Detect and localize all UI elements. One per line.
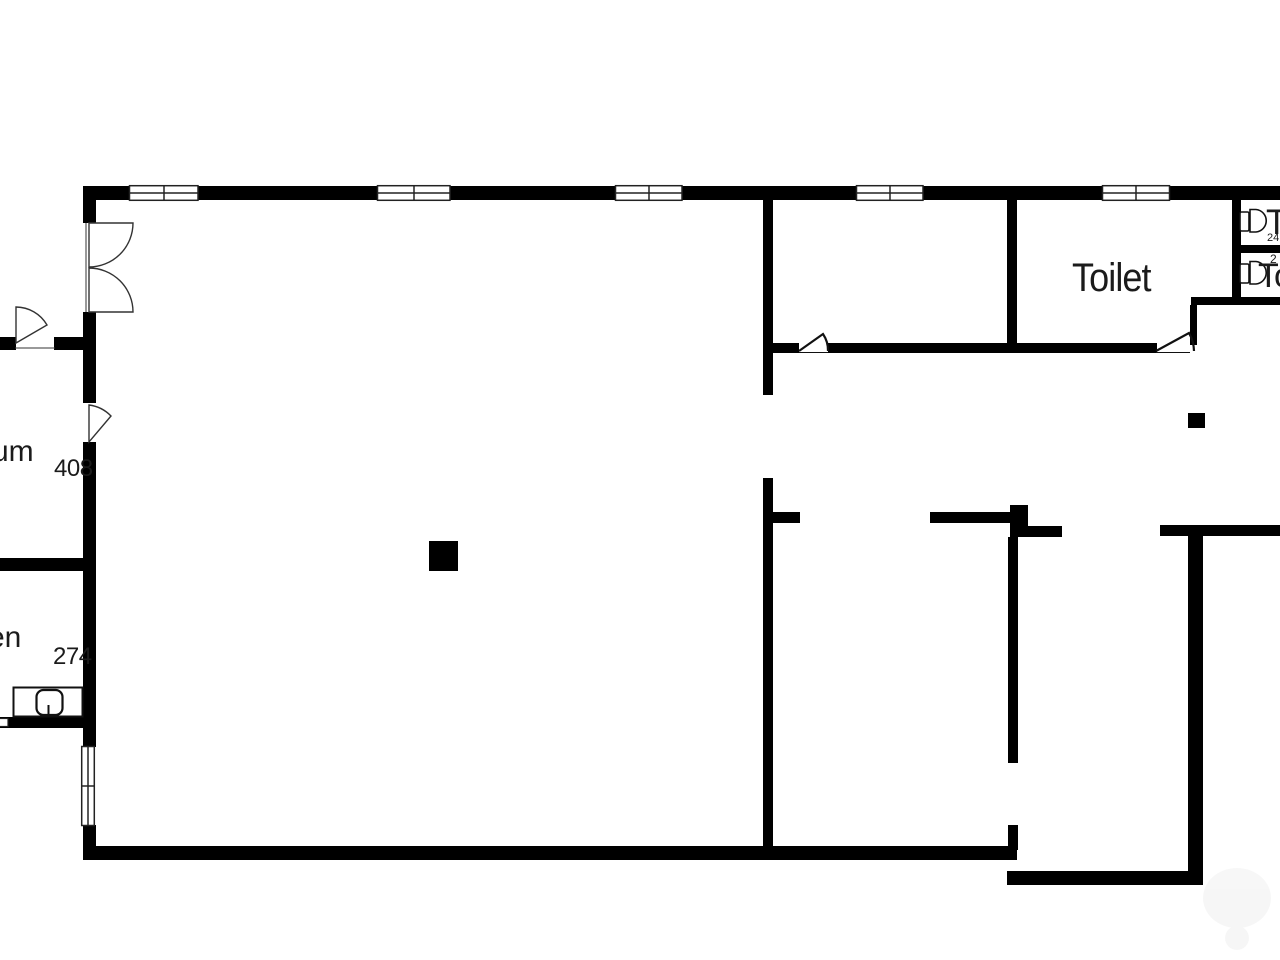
window-icon [82,747,95,826]
watermark [1203,868,1271,950]
toilet-icon [1240,210,1266,233]
stall-top-number-fragment: 24 [1267,233,1279,244]
sink-counter-icon [14,688,83,717]
double-door-icon [86,223,133,312]
room-label-left-lower: en [0,623,21,653]
window-icon [616,186,683,201]
room-dimension-left-lower: 274 [53,645,92,669]
window-icon [857,186,924,201]
window-icon [378,186,451,201]
door-icon [89,405,111,442]
room-label-left-upper: um [0,437,34,467]
door-icon [799,334,828,353]
floor-plan: um 408 en 274 Toilet T 24 2 To [0,0,1280,960]
window-icon [1103,186,1170,201]
door-icon [1156,333,1194,353]
stall-bottom-label-fragment: To [1258,259,1280,293]
window-icon [0,719,8,727]
door-icon [15,307,55,348]
plan-symbols [0,0,1280,960]
window-icon [130,186,199,201]
room-label-toilet: Toilet [1072,258,1151,298]
room-dimension-left-upper: 408 [54,457,93,481]
